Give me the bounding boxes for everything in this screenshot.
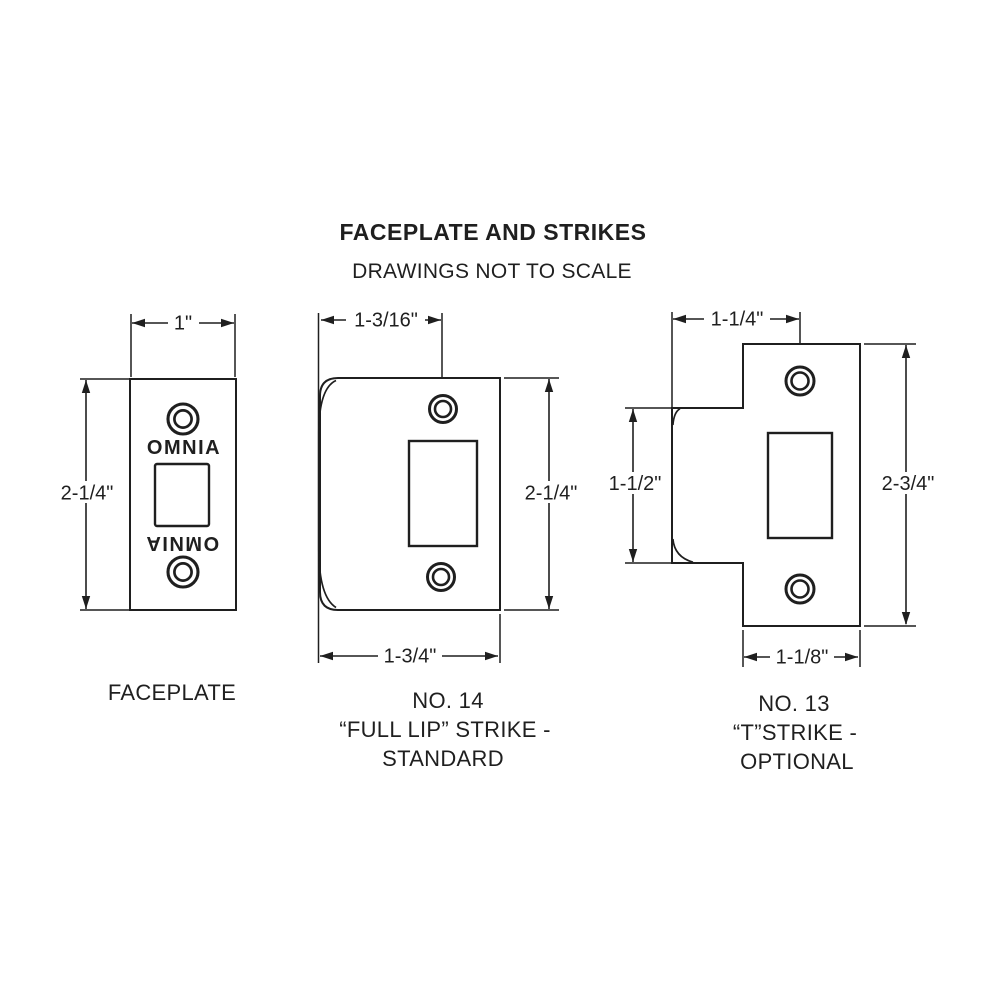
faceplate-height-dimension: 2-1/4" [59,379,129,610]
page-subtitle: DRAWINGS NOT TO SCALE [352,260,632,283]
page-title: FACEPLATE AND STRIKES [340,219,647,245]
faceplate-outline [130,379,236,610]
strike13-label-line3: OPTIONAL [740,749,854,774]
strike14-label-line1: NO. 14 [412,688,484,713]
strike14-top-width-value: 1-3/16" [354,310,418,332]
strike14-height-dimension: 2-1/4" [504,378,579,610]
faceplate-label: FACEPLATE [108,680,236,705]
strike13-lip-height-value: 1-1/2" [609,473,662,495]
technical-drawing: FACEPLATE AND STRIKES DRAWINGS NOT TO SC… [0,0,1000,1000]
faceplate-width-value: 1" [174,313,192,335]
faceplate-height-value: 2-1/4" [61,483,114,505]
strike13-bottom-width-value: 1-1/8" [776,647,829,669]
t-strike-drawing: 1-1/4" 1-1/2" 2-3/4" [606,308,937,774]
drawing-page: FACEPLATE AND STRIKES DRAWINGS NOT TO SC… [0,0,1000,1000]
strike13-height-dimension: 2-3/4" [864,344,937,626]
strike14-label-line2: “FULL LIP” STRIKE - [339,717,550,742]
strike14-height-value: 2-1/4" [525,483,578,505]
strike14-bottom-width-value: 1-3/4" [384,646,437,668]
full-lip-strike-drawing: 1-3/16" 2-1/4" 1-3/4" NO. 14 [319,309,580,771]
strike14-bottom-width-dimension: 1-3/4" [320,614,500,668]
strike13-label-line1: NO. 13 [758,691,830,716]
omnia-engraving-bottom-rotated: OMNIA [145,532,219,554]
strike13-top-width-value: 1-1/4" [711,309,764,331]
strike13-label-line2: “T”STRIKE - [733,720,857,745]
faceplate-drawing: 1" 2-1/4" OMNIA OMNIA FACEPLATE [59,312,236,705]
strike13-bottom-width-dimension: 1-1/8" [743,630,860,669]
strike14-label-line3: STANDARD [382,746,504,771]
omnia-engraving-top: OMNIA [147,437,221,459]
strike13-lip-height-dimension: 1-1/2" [606,409,664,562]
faceplate-width-dimension: 1" [131,312,235,377]
strike13-height-value: 2-3/4" [882,473,935,495]
